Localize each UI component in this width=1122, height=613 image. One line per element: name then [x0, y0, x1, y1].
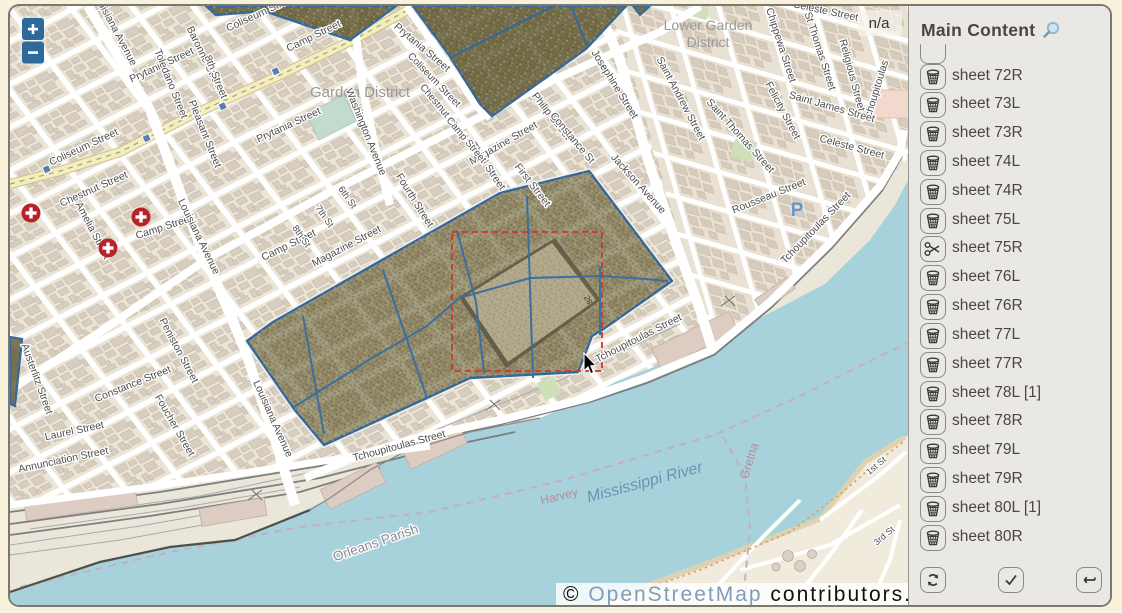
svg-text:© OpenStreetMap contributors.: © OpenStreetMap contributors.	[563, 583, 908, 605]
svg-text:P: P	[791, 200, 804, 221]
svg-text:Garden District: Garden District	[310, 84, 411, 101]
svg-text:Lower Garden: Lower Garden	[664, 17, 753, 33]
svg-text:n/a: n/a	[869, 15, 891, 32]
svg-text:District: District	[687, 34, 730, 50]
